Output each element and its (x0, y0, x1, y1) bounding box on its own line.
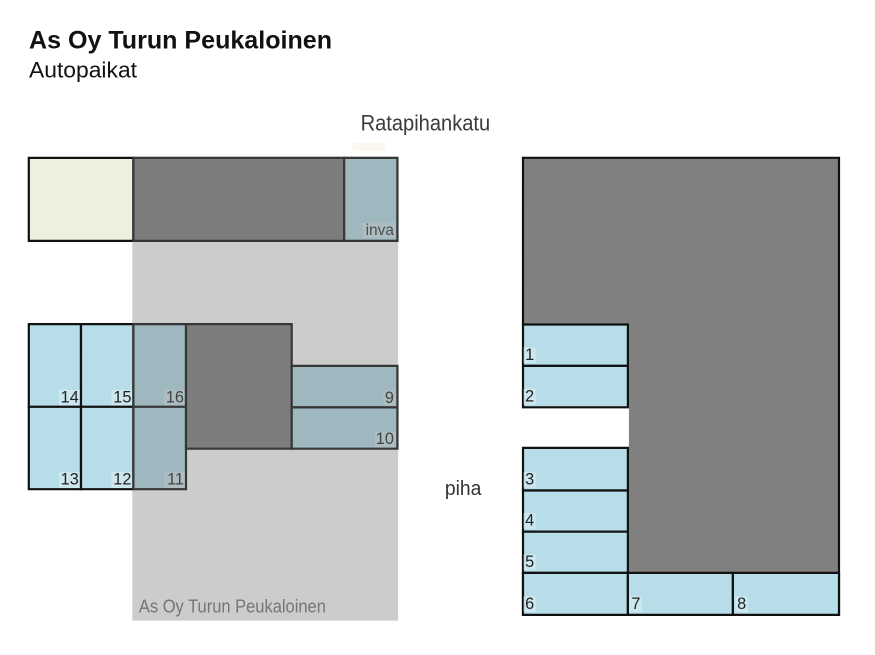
svg-text:12: 12 (113, 471, 131, 489)
svg-text:1: 1 (525, 346, 534, 364)
svg-text:piha: piha (445, 478, 482, 500)
svg-text:2: 2 (525, 387, 534, 405)
svg-text:4: 4 (525, 512, 534, 530)
svg-text:13: 13 (61, 471, 79, 489)
svg-text:15: 15 (113, 388, 131, 406)
svg-text:As Oy Turun Peukaloinen: As Oy Turun Peukaloinen (139, 596, 326, 617)
svg-text:6: 6 (525, 595, 534, 613)
svg-text:14: 14 (61, 388, 79, 406)
svg-text:7: 7 (631, 595, 640, 613)
svg-text:Autopaikat: Autopaikat (29, 57, 137, 82)
svg-text:3: 3 (525, 471, 534, 489)
svg-text:5: 5 (525, 553, 534, 571)
svg-text:As Oy Turun Peukaloinen: As Oy Turun Peukaloinen (29, 26, 332, 54)
svg-text:8: 8 (737, 595, 746, 613)
svg-text:Ratapihankatu: Ratapihankatu (361, 110, 491, 135)
